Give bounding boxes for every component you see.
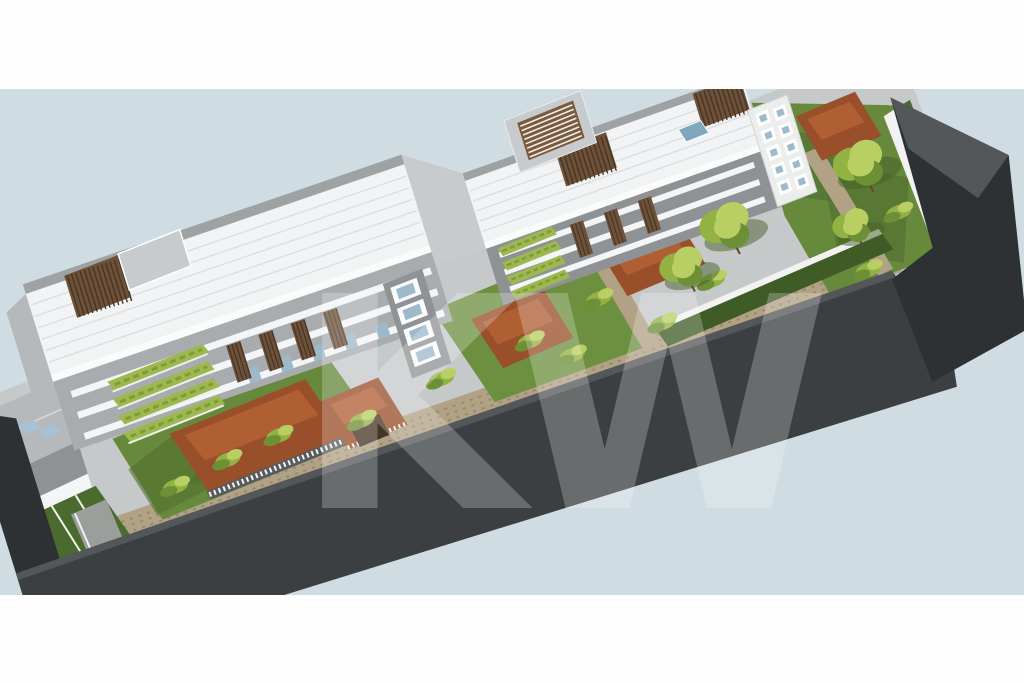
rendering-image: KW — [0, 0, 1024, 683]
kw-watermark: KW — [295, 234, 824, 578]
bottom-margin — [0, 595, 1024, 683]
top-margin — [0, 0, 1024, 89]
architectural-rendering: KW — [0, 0, 1024, 683]
